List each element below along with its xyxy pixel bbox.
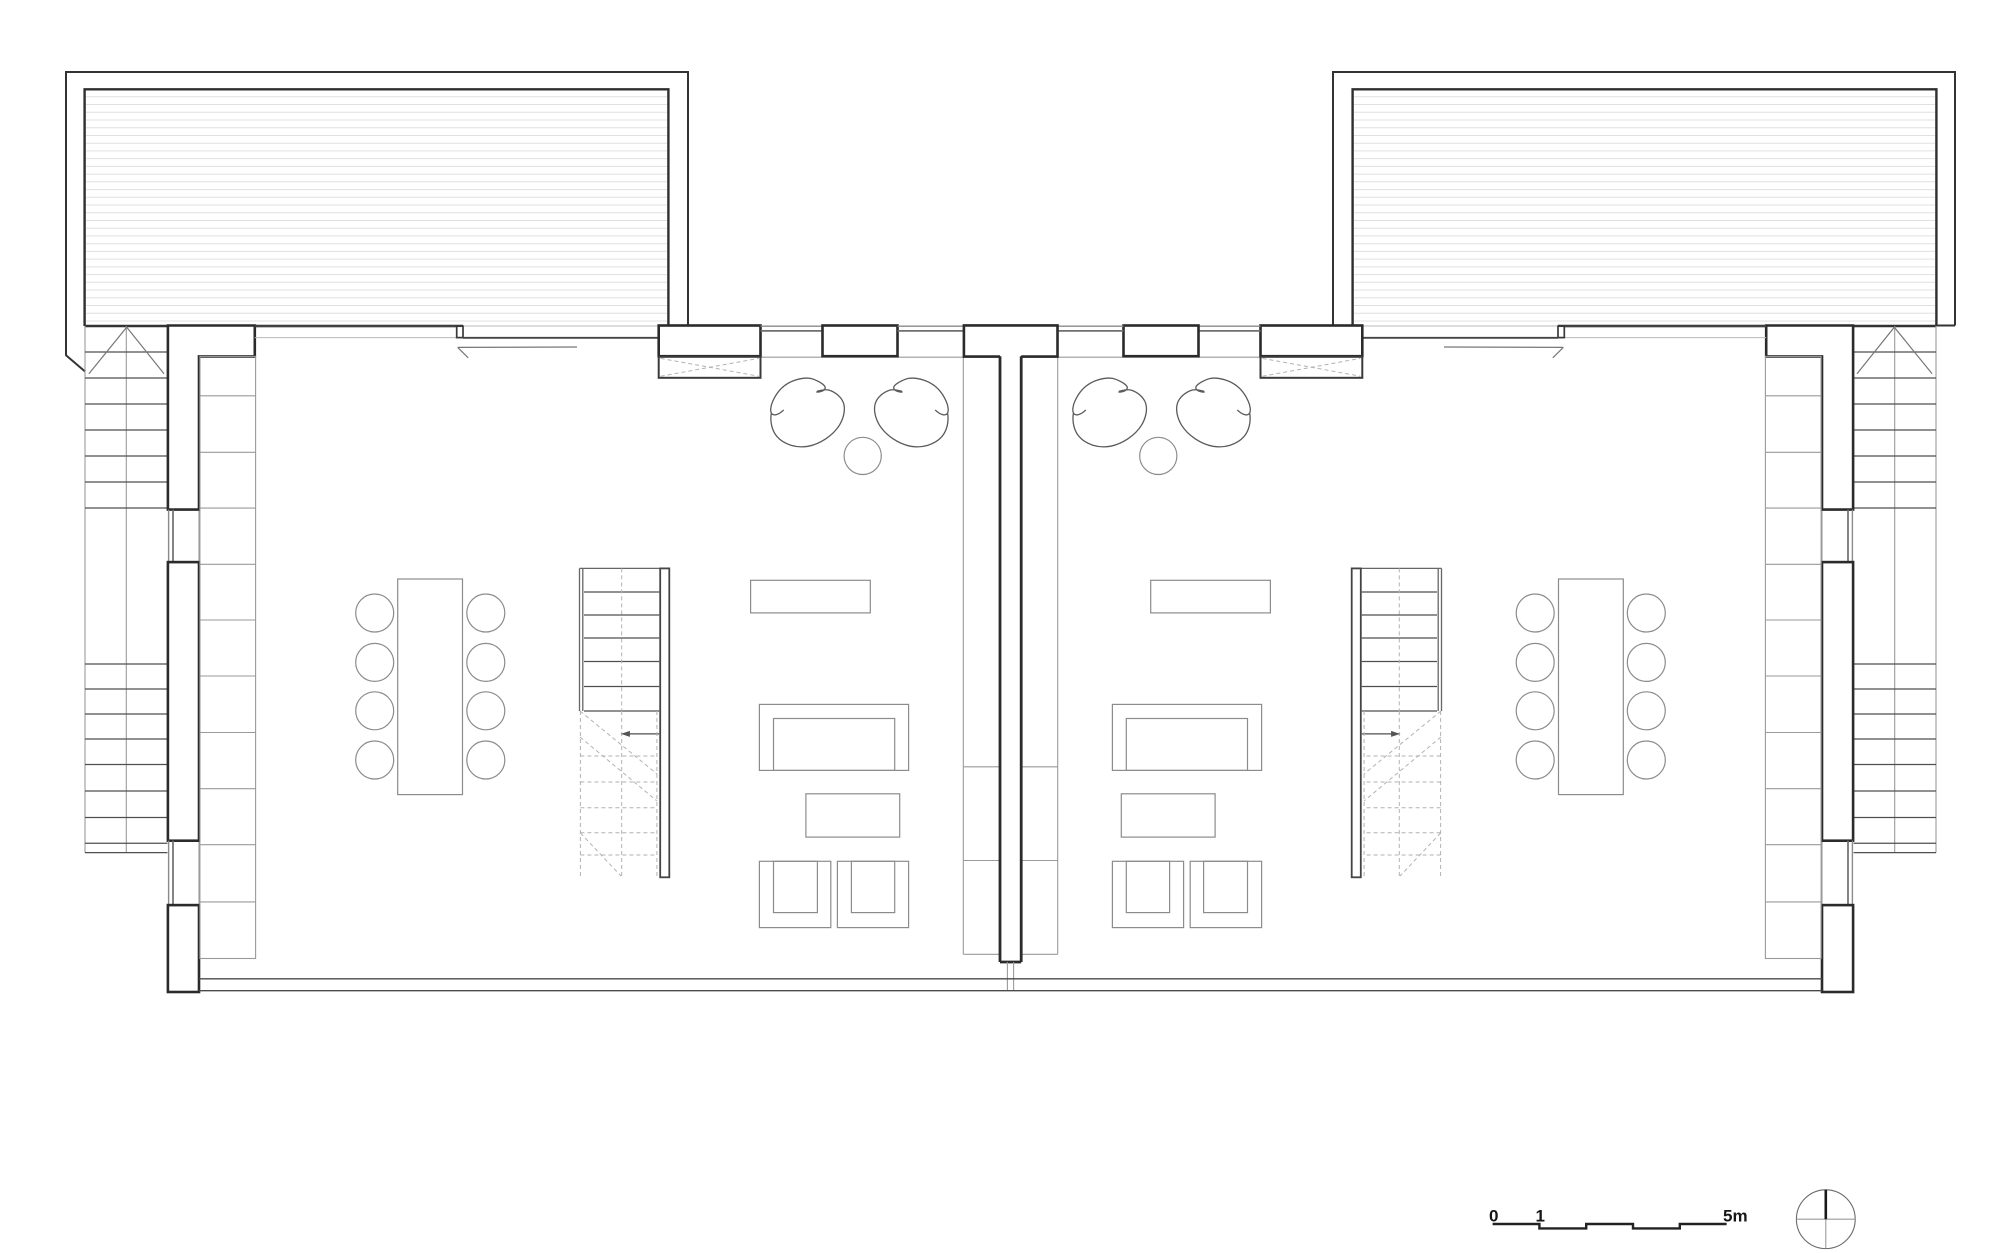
svg-text:5m: 5m xyxy=(1723,1207,1748,1226)
svg-text:0: 0 xyxy=(1489,1207,1498,1226)
svg-text:1: 1 xyxy=(1536,1207,1545,1226)
